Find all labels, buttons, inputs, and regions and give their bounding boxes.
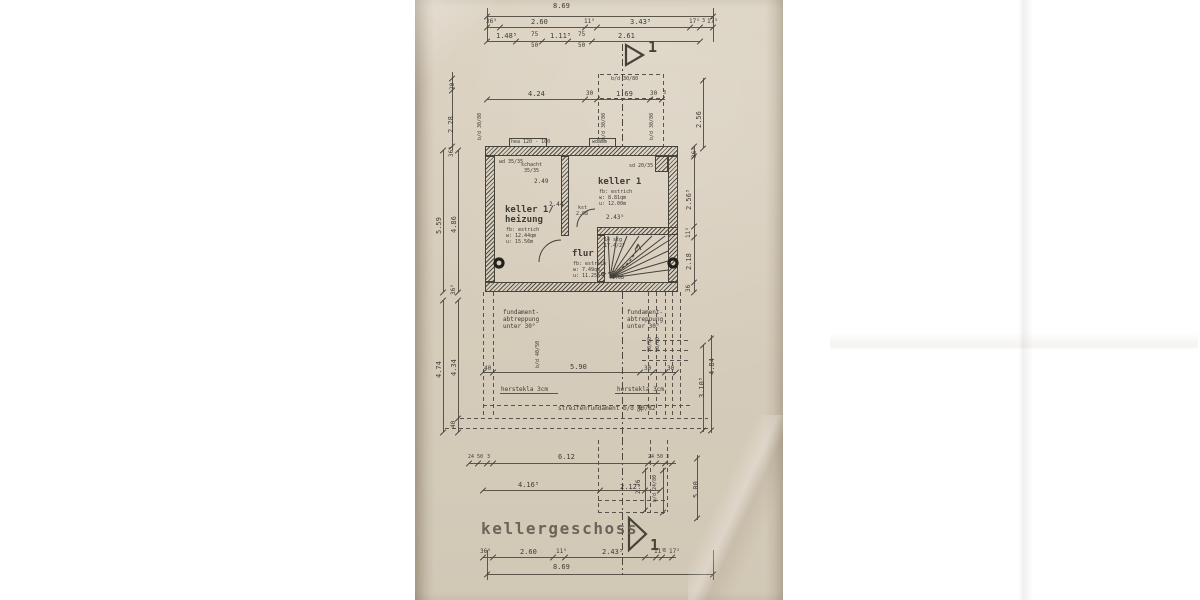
dimension-label: 50 — [638, 405, 644, 412]
dimension-label: 1.48⁵ — [496, 33, 517, 40]
dimension-label: 4.34 — [451, 359, 458, 376]
dimension-line — [483, 557, 676, 558]
dimension-line — [443, 150, 444, 292]
dimension-label: 3 — [487, 455, 490, 460]
dimension-label: 2.60 — [520, 549, 537, 556]
room-label-heizung: heizung — [505, 216, 543, 225]
dimension-label: 30/80 — [648, 337, 653, 352]
dimension-label: 2.61 — [618, 33, 635, 40]
dimension-label: 3 — [702, 19, 705, 24]
foundation-dashed-line — [650, 440, 651, 512]
foundation-dashed-line — [460, 418, 708, 419]
dimension-line — [713, 550, 714, 580]
dimension-label: 3.10⁵ — [699, 377, 706, 398]
dimension-label: 17⁵ — [707, 19, 718, 25]
dimension-label: 1.08 — [612, 276, 624, 281]
dimension-label: 17.4/27 — [604, 244, 625, 249]
foundation-dashed-line — [663, 74, 664, 146]
foundation-dashed-line — [493, 292, 494, 418]
paper-crease — [1098, 290, 1114, 600]
dimension-label: herstekla 3cm — [617, 387, 664, 393]
dimension-line — [469, 463, 676, 464]
dimension-label: u: 11.25m — [573, 274, 600, 279]
dimension-label: 30 — [644, 366, 651, 372]
foundation-dashed-line — [445, 428, 710, 429]
foundation-dashed-line — [667, 440, 668, 512]
dimension-label: 5.90 — [570, 364, 587, 371]
foundation-dashed-line — [672, 292, 673, 418]
interior-wall-horizontal — [597, 227, 678, 235]
paper-crease — [1007, 0, 1033, 600]
dimension-label: 50 — [657, 455, 663, 460]
dimension-label: 2.43⁵ — [606, 215, 624, 221]
dimension-label: 2.49 — [534, 179, 548, 185]
dimension-label: 50 — [531, 43, 538, 49]
dimension-label: b/d 30/80 — [650, 113, 655, 140]
foundation-dashed-line — [483, 292, 484, 418]
dimension-label: 2.44 — [549, 202, 563, 208]
dimension-label: 1.69 — [616, 91, 633, 98]
dimension-label: 30 — [667, 366, 674, 372]
dimension-label: 17⁵ — [669, 549, 680, 555]
exterior-wall-top — [485, 146, 678, 156]
dimension-label: 36 — [686, 285, 692, 292]
dimension-label: 36⁵ — [451, 284, 457, 295]
exterior-wall-left — [485, 156, 495, 282]
dimension-label: 35/35 — [524, 169, 539, 174]
dimension-label: 75 — [578, 32, 585, 38]
foundation-dashed-line — [598, 74, 599, 146]
dimension-label: 11⁵ — [686, 227, 692, 238]
dimension-label: 3 — [663, 549, 666, 554]
dimension-label: herstekla 3cm — [501, 387, 548, 393]
foundation-dashed-line — [600, 74, 664, 75]
dimension-label: b/d 24/80 — [653, 475, 658, 502]
dimension-line — [694, 146, 695, 292]
dimension-label: 5.00 — [693, 481, 700, 498]
dimension-line — [500, 393, 558, 394]
dimension-label: 4.74 — [436, 361, 443, 378]
dimension-line — [663, 468, 664, 514]
dimension-label: 4.16⁵ — [518, 482, 539, 489]
dimension-line — [458, 150, 459, 292]
dimension-label: 50 — [477, 455, 483, 460]
foundation-dashed-line — [598, 512, 667, 513]
dimension-label: hea 120 - 100 — [511, 140, 550, 145]
dimension-label: 11⁵ — [584, 19, 595, 25]
dimension-label: 4.84 — [709, 358, 716, 375]
wall-pier — [655, 156, 668, 172]
section-cut-line — [622, 292, 623, 438]
dimension-label: 30 — [650, 91, 657, 97]
dimension-label: 2.56⁵ — [686, 189, 693, 210]
dimension-label: 36⁵ — [480, 549, 491, 555]
dimension-label: wd 35/35 — [499, 160, 523, 165]
dimension-label: sd 20/35 — [629, 164, 653, 169]
dimension-label: 40 — [484, 366, 491, 372]
drawing-title: kellergeschoss — [481, 519, 638, 538]
dimension-label: u: 12.00m — [599, 202, 626, 207]
dimension-label: 1.11⁵ — [550, 33, 571, 40]
room-label-keller1: keller 1 — [598, 178, 641, 187]
dimension-label: b/d 30/80 — [602, 113, 607, 140]
dimension-label: b/d 40/50 — [536, 341, 541, 368]
foundation-dashed-line — [680, 292, 681, 418]
dimension-label: 75 — [531, 32, 538, 38]
exterior-wall-right — [668, 156, 678, 282]
interior-wall-vertical — [561, 156, 569, 236]
dimension-label: 8.69 — [553, 3, 570, 10]
dimension-line — [487, 27, 713, 28]
dimension-label: 2.12⁵ — [620, 484, 641, 491]
dimension-label: 2.28 — [448, 116, 455, 133]
section-number-top: 1 — [648, 38, 657, 56]
dimension-label: 4.86 — [451, 216, 458, 233]
dimension-label: 30 — [586, 91, 593, 97]
dimension-line — [487, 16, 713, 17]
foundation-dashed-line — [600, 98, 664, 99]
room-label-flur: flur — [572, 250, 594, 259]
foundation-dashed-line — [598, 440, 599, 512]
dimension-label: 36⁵ — [486, 19, 497, 25]
dimension-label: b/d 30/80 — [478, 113, 483, 140]
dimension-label: 20 — [450, 83, 456, 90]
dimension-label: b/d 30/80 — [611, 77, 638, 82]
paper-sheet — [415, 0, 783, 600]
dimension-line — [458, 300, 459, 432]
dimension-label: 2.08 — [576, 212, 588, 217]
dimension-label: 2.43⁵ — [602, 549, 623, 556]
dimension-label: 4.24 — [528, 91, 545, 98]
section-number-bottom: 1 — [650, 536, 659, 554]
dimension-label: 17⁵ — [689, 19, 700, 25]
dimension-label: 24 — [648, 455, 654, 460]
paper-crease — [830, 332, 1198, 358]
dimension-label: 8.69 — [553, 564, 570, 571]
dimension-label: 6.12 — [558, 454, 575, 461]
dimension-line — [487, 41, 700, 42]
dimension-label: 5.59 — [436, 217, 443, 234]
dimension-label: 2.60 — [531, 19, 548, 26]
dimension-label: wdämm — [592, 140, 607, 145]
scanned-floor-plan: 8.6936⁵2.6011⁵3.43⁵17⁵317⁵1.48⁵75501.11⁵… — [0, 0, 1200, 600]
dimension-line — [703, 78, 704, 148]
dimension-label: 24 — [468, 455, 474, 460]
dimension-label: u: 15.56m — [506, 240, 533, 245]
dimension-label: 2.56 — [696, 111, 703, 128]
dimension-label: 3 — [663, 91, 666, 96]
dimension-line — [711, 335, 712, 433]
dimension-label: unter 30° — [627, 324, 660, 330]
dimension-label: 2.18 — [686, 253, 693, 270]
dimension-label: 40 — [451, 421, 457, 428]
dimension-label: unter 30° — [503, 324, 536, 330]
exterior-wall-bottom — [485, 282, 678, 292]
dimension-line — [443, 300, 444, 432]
dimension-label: 3.43⁵ — [630, 19, 651, 26]
room-label-heizung: keller 1/ — [505, 206, 554, 215]
foundation-dashed-line — [665, 292, 666, 418]
dimension-label: 11⁵ — [556, 549, 567, 555]
dimension-line — [487, 574, 713, 575]
dimension-label: 36⁵ — [692, 147, 698, 158]
dimension-line — [487, 99, 665, 100]
dimension-label: 50 — [578, 43, 585, 49]
dimension-label: 3 — [666, 455, 669, 460]
dimension-label: 50/80 — [656, 337, 661, 352]
dimension-label: 36⁵ — [449, 146, 455, 157]
